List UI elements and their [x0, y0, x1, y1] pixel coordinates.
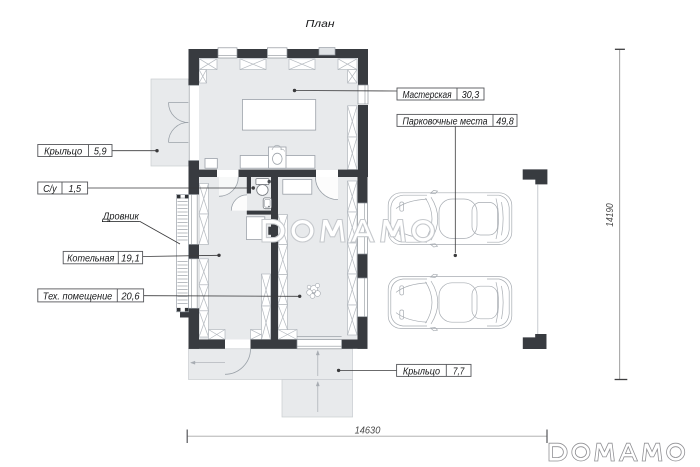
svg-text:Крыльцо: Крыльцо: [403, 366, 441, 377]
svg-text:19,1: 19,1: [121, 254, 140, 265]
svg-text:30,3: 30,3: [462, 90, 480, 101]
svg-text:Крыльцо: Крыльцо: [44, 147, 82, 158]
svg-text:Котельная: Котельная: [67, 254, 115, 265]
svg-text:14190: 14190: [605, 203, 616, 227]
svg-text:49,8: 49,8: [496, 116, 514, 127]
svg-text:5,9: 5,9: [94, 147, 107, 158]
svg-text:Мастерская: Мастерская: [403, 90, 453, 101]
svg-text:План: План: [306, 19, 335, 30]
svg-text:20,6: 20,6: [120, 291, 140, 302]
svg-text:14630: 14630: [355, 425, 381, 436]
svg-text:1,5: 1,5: [68, 184, 81, 195]
svg-text:Дровник: Дровник: [102, 212, 139, 223]
svg-text:Парковочные места: Парковочные места: [403, 116, 488, 127]
svg-text:7,7: 7,7: [453, 366, 465, 377]
svg-text:С/у: С/у: [43, 184, 57, 195]
svg-text:Тех. помещение: Тех. помещение: [43, 291, 113, 302]
